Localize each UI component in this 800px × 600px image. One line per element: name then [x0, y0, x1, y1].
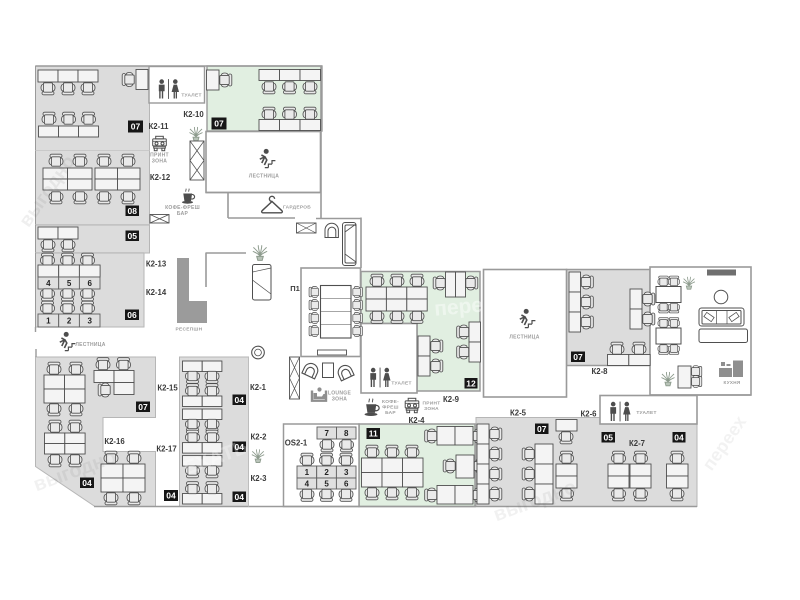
svg-text:К2-7: К2-7 — [629, 439, 645, 448]
svg-text:ЛЕСТНИЦА: ЛЕСТНИЦА — [509, 335, 539, 341]
svg-text:04: 04 — [235, 492, 245, 502]
svg-text:ЗОНА: ЗОНА — [332, 397, 347, 403]
svg-text:5: 5 — [324, 479, 329, 488]
svg-text:КУХНЯ: КУХНЯ — [724, 380, 741, 385]
svg-text:К2-12: К2-12 — [150, 173, 171, 182]
svg-text:К2-16: К2-16 — [104, 437, 125, 446]
svg-text:БАР: БАР — [385, 410, 396, 416]
svg-text:ФРЕШ: ФРЕШ — [382, 405, 399, 411]
svg-text:ЗОНА: ЗОНА — [424, 406, 439, 412]
svg-text:П1: П1 — [290, 284, 300, 293]
svg-text:04: 04 — [166, 491, 176, 501]
svg-text:ЛЕСТНИЦА: ЛЕСТНИЦА — [75, 342, 105, 348]
svg-text:К2-8: К2-8 — [591, 367, 608, 376]
svg-text:OS2-1: OS2-1 — [285, 439, 308, 448]
svg-text:К2-5: К2-5 — [510, 409, 527, 418]
svg-text:04: 04 — [235, 395, 245, 405]
svg-text:2: 2 — [67, 316, 72, 325]
svg-text:К2-10: К2-10 — [183, 110, 204, 119]
svg-text:К2-13: К2-13 — [146, 260, 167, 269]
svg-text:7: 7 — [325, 429, 330, 438]
svg-text:6: 6 — [87, 279, 92, 288]
svg-text:К2-1: К2-1 — [250, 383, 267, 392]
svg-text:РЕСЕПШН: РЕСЕПШН — [176, 327, 203, 333]
svg-text:БАР: БАР — [177, 211, 189, 217]
svg-text:4: 4 — [305, 479, 310, 488]
svg-text:ТУАЛЕТ: ТУАЛЕТ — [181, 93, 201, 99]
svg-text:8: 8 — [344, 429, 349, 438]
svg-text:пере: пере — [433, 294, 484, 321]
svg-text:К2-6: К2-6 — [580, 410, 597, 419]
svg-text:ТУАЛЕТ: ТУАЛЕТ — [391, 381, 411, 387]
svg-text:К2-3: К2-3 — [250, 474, 267, 483]
svg-text:07: 07 — [131, 122, 141, 132]
svg-text:КОФЕ-: КОФЕ- — [382, 399, 399, 405]
svg-text:ЛЕСТНИЦА: ЛЕСТНИЦА — [249, 174, 279, 180]
svg-text:12: 12 — [466, 378, 476, 388]
svg-text:ЗОНА: ЗОНА — [152, 159, 167, 165]
svg-text:07: 07 — [537, 424, 547, 434]
svg-text:3: 3 — [344, 468, 349, 477]
svg-text:07: 07 — [214, 119, 224, 129]
svg-text:11: 11 — [369, 429, 378, 439]
svg-text:07: 07 — [573, 352, 583, 362]
svg-text:К2-11: К2-11 — [149, 122, 170, 131]
svg-text:ГАРДЕРОБ: ГАРДЕРОБ — [283, 205, 311, 211]
svg-text:08: 08 — [128, 206, 138, 216]
svg-text:05: 05 — [604, 432, 614, 442]
svg-text:07: 07 — [138, 402, 148, 412]
svg-text:1: 1 — [46, 316, 51, 325]
svg-text:К2-14: К2-14 — [146, 288, 167, 297]
svg-text:5: 5 — [67, 279, 72, 288]
svg-text:К2-4: К2-4 — [408, 416, 425, 425]
svg-text:6: 6 — [344, 479, 349, 488]
svg-text:К2-15: К2-15 — [157, 384, 178, 393]
svg-text:К2-9: К2-9 — [443, 395, 460, 404]
svg-text:04: 04 — [674, 432, 684, 442]
svg-text:3: 3 — [87, 316, 92, 325]
svg-text:ПРИНТ: ПРИНТ — [423, 401, 441, 407]
svg-text:06: 06 — [127, 310, 137, 320]
svg-text:4: 4 — [46, 279, 51, 288]
svg-text:К2-17: К2-17 — [156, 445, 176, 454]
svg-text:2: 2 — [324, 468, 329, 477]
svg-text:1: 1 — [305, 468, 310, 477]
svg-text:К2-2: К2-2 — [250, 433, 267, 442]
svg-text:ТУАЛЕТ: ТУАЛЕТ — [636, 410, 656, 416]
svg-text:05: 05 — [128, 231, 138, 241]
